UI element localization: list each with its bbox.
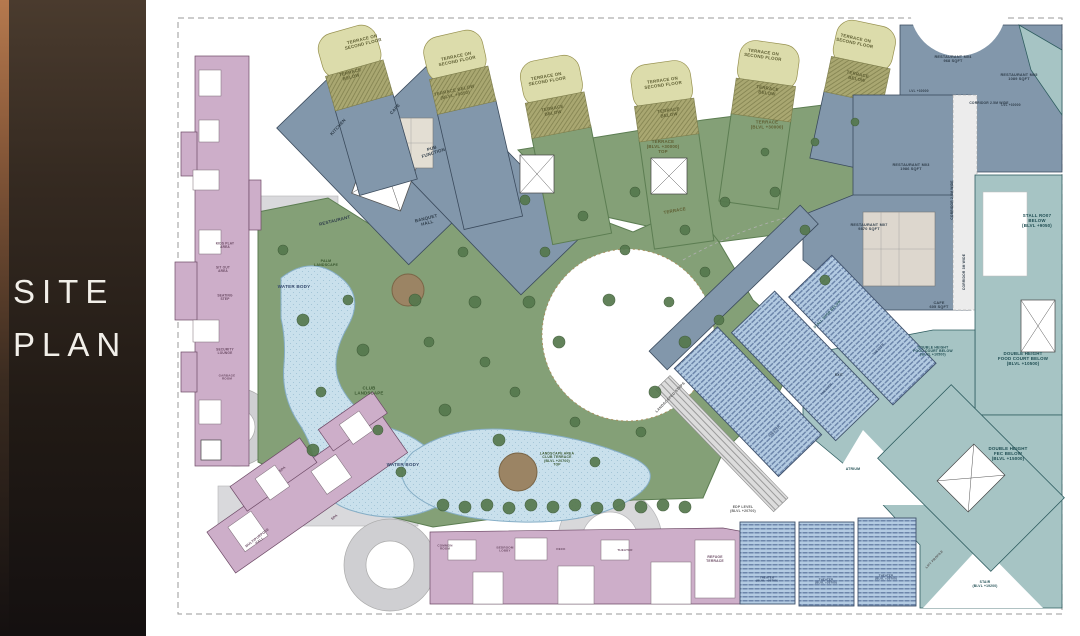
tree [469,296,481,308]
tree [396,467,406,477]
tree [437,499,449,511]
plan-label: ATRIUM [846,467,861,471]
tree [590,457,600,467]
tree [316,387,326,397]
tree [569,499,581,511]
tree [657,499,669,511]
tree [278,245,288,255]
tree [373,425,383,435]
island [499,453,537,491]
tree [613,499,625,511]
plan-label: DECK [556,547,566,551]
tree [307,444,319,456]
tree [700,267,710,277]
site-plan-panel: TERRACE ONSECOND FLOORTERRACEBELOWTERRAC… [146,0,1080,636]
tree [636,427,646,437]
tree [553,336,565,348]
page-title-line2: PLAN [13,319,127,372]
plan-label: SIT OUTAREA [216,265,230,273]
tree [620,245,630,255]
tree [761,148,769,156]
plan-label: WATER BODY [278,284,311,289]
tree [520,195,530,205]
site-plan-drawing: TERRACE ONSECOND FLOORTERRACEBELOWTERRAC… [146,0,1080,636]
plan-label: SECURITYLOUNGE [216,347,234,355]
tree [770,187,780,197]
tree [679,501,691,513]
tree [424,337,434,347]
plan-label: LVL +30000 [1001,103,1020,107]
page-title-line1: SITE [13,266,127,319]
tree [851,118,859,126]
tree [664,297,674,307]
tree [547,501,559,513]
tree [680,225,690,235]
cinema-bottom [740,518,916,606]
plan-label: CORRIDOR 2.5M WIDE [950,180,954,220]
tree [720,197,730,207]
tree [458,247,468,257]
page-title: SITE PLAN [13,266,127,372]
tree [503,502,515,514]
tree [591,502,603,514]
tree [800,225,810,235]
tree [297,314,309,326]
tree [570,417,580,427]
plan-label: WATER BODY [387,462,420,467]
plan-label: REFUGETERRACE [706,555,724,563]
tree [459,501,471,513]
tree [357,344,369,356]
tree [811,138,819,146]
tree [630,187,640,197]
tree [820,275,830,285]
tree [480,357,490,367]
plan-label: EDP LEVEL(BLVL +20700) [730,505,756,513]
tree [603,294,615,306]
tree [679,336,691,348]
tree [439,404,451,416]
tree [510,387,520,397]
tree [343,295,353,305]
tree [578,211,588,221]
tree [540,247,550,257]
tree [481,499,493,511]
plan-label: CORRIDOR 3M WIDE [962,253,966,290]
plan-label: DOUBLE HEIGHTFEC BELOW(BLVL +15000) [989,446,1028,461]
plan-label: EXIT [835,373,844,377]
plan-label: THEATER [617,548,633,552]
residential-strip [430,528,745,604]
copper-accent-strip [0,0,9,636]
tree [493,434,505,446]
sidebar: SITE PLAN [0,0,146,636]
tree [523,296,535,308]
tree [409,294,421,306]
residential-tower [175,56,261,466]
tree [649,386,661,398]
tree [635,501,647,513]
tree [714,315,724,325]
tree [525,499,537,511]
plan-label: LVL +30000 [909,89,928,93]
